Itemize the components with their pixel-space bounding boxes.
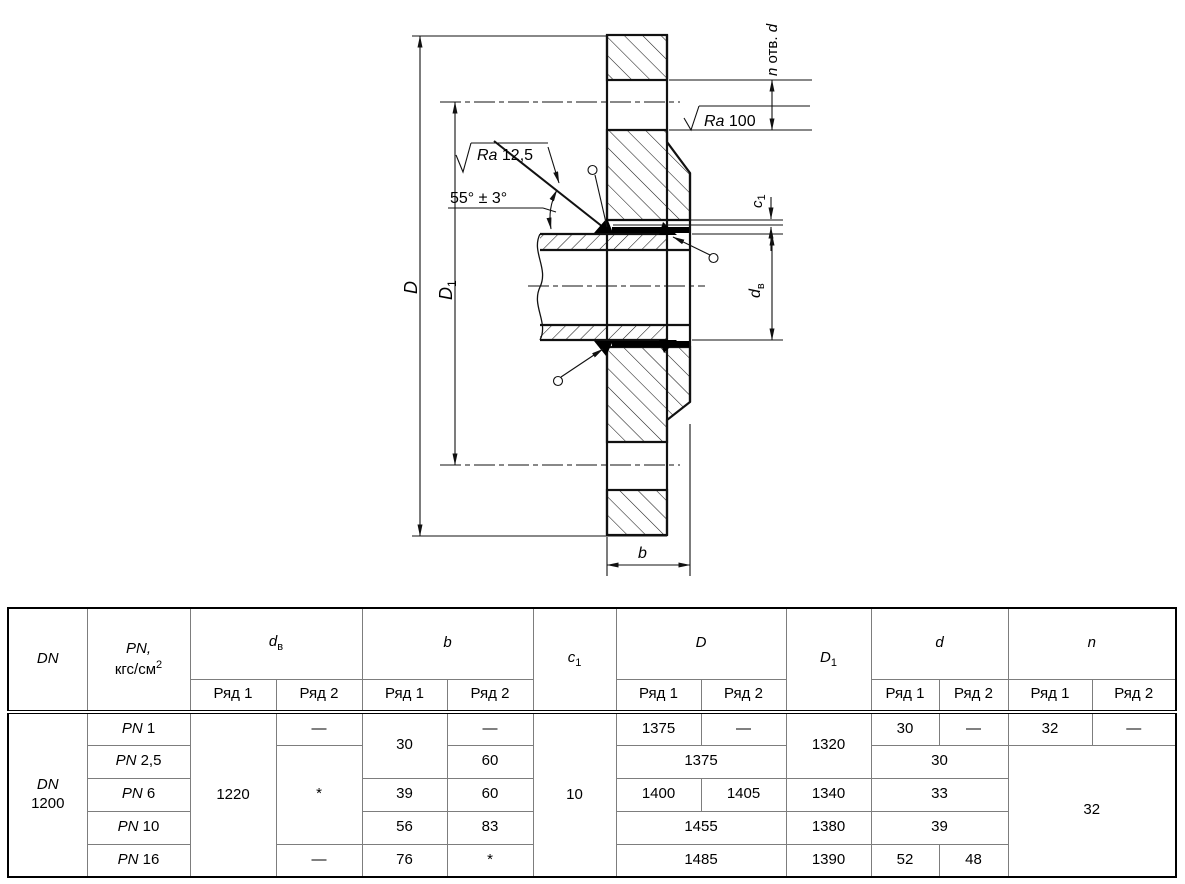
cell-pn-6: PN 6 [87,778,190,811]
cell-d-pn25: 30 [871,745,1008,778]
cell-D-row1-pn6: 1400 [616,778,701,811]
weld-perimeter-circle-icon [709,254,718,263]
col-header-b: b [362,608,533,679]
flange-technical-drawing: D D1 n отв. d Ra 100 Ra 12,5 55° ± 3° c1… [0,0,1185,600]
cell-d-row2-pn16: 48 [939,844,1008,877]
cell-b-row2-pn6: 60 [447,778,533,811]
pn-header-sup: 2 [156,659,162,671]
cell-dv-row1: 1220 [190,712,276,877]
weld-perimeter-circle-icon [588,166,597,175]
label-b: b [638,545,647,562]
subheader-n-row1: Ряд 1 [1008,679,1092,712]
cell-D1-pn10: 1380 [786,811,871,844]
pn-header-line1: PN, [126,640,151,657]
cell-b-row1-pn1-pn25: 30 [362,712,447,778]
label-D1: D1 [436,280,459,300]
cell-D-pn25: 1375 [616,745,786,778]
subheader-D-row2: Ряд 2 [701,679,786,712]
cell-c1: 10 [533,712,616,877]
cell-dv-row2-pn16: — [276,844,362,877]
cell-D1-pn1-pn25: 1320 [786,712,871,778]
roughness-check-icon [456,143,471,172]
col-header-D1: D1 [786,608,871,712]
cell-b-row2-pn1: — [447,712,533,745]
cell-b-row1-pn10: 56 [362,811,447,844]
col-header-c1: c1 [533,608,616,712]
subheader-dv-row2: Ряд 2 [276,679,362,712]
page: D D1 n отв. d Ra 100 Ra 12,5 55° ± 3° c1… [0,0,1185,884]
cell-D1-pn6: 1340 [786,778,871,811]
label-dv: dв [747,283,767,298]
subheader-d-row1: Ряд 1 [871,679,939,712]
cell-n-rest: 32 [1008,745,1176,877]
cell-b-row2-pn25: 60 [447,745,533,778]
cell-n-row2-pn1: — [1092,712,1176,745]
cell-d-pn10: 39 [871,811,1008,844]
subheader-D-row1: Ряд 1 [616,679,701,712]
subheader-b-row2: Ряд 2 [447,679,533,712]
cell-D-row2-pn6: 1405 [701,778,786,811]
cell-d-row1-pn16: 52 [871,844,939,877]
label-ra-12-5: Ra 12,5 [477,147,533,164]
cell-D-row2-pn1: — [701,712,786,745]
cell-D-row1-pn1: 1375 [616,712,701,745]
cell-dv-row2-pn1: — [276,712,362,745]
subheader-dv-row1: Ряд 1 [190,679,276,712]
cell-d-pn6: 33 [871,778,1008,811]
subheader-b-row1: Ряд 1 [362,679,447,712]
col-header-D: D [616,608,786,679]
label-angle: 55° ± 3° [450,190,507,207]
cell-d-row2-pn1: — [939,712,1008,745]
col-header-n: n [1008,608,1176,679]
cell-D-pn10: 1455 [616,811,786,844]
cell-dn: DN 1200 [8,712,87,877]
drawing-labels: D D1 n отв. d Ra 100 Ra 12,5 55° ± 3° c1… [401,23,781,562]
col-header-dv: dв [190,608,362,679]
cell-D1-pn16: 1390 [786,844,871,877]
label-c1: c1 [749,194,768,208]
col-header-d: d [871,608,1008,679]
cell-b-row1-pn6: 39 [362,778,447,811]
cell-pn-10: PN 10 [87,811,190,844]
cell-b-row2-pn16: * [447,844,533,877]
roughness-check-icon [684,106,699,130]
cell-b-row2-pn10: 83 [447,811,533,844]
cell-pn-25: PN 2,5 [87,745,190,778]
cell-pn-16: PN 16 [87,844,190,877]
subheader-n-row2: Ряд 2 [1092,679,1176,712]
flange-section-body [607,35,690,535]
subheader-d-row2: Ряд 2 [939,679,1008,712]
cell-d-row1-pn1: 30 [871,712,939,745]
col-header-dn: DN [8,608,87,712]
cell-dv-row2-mid: * [276,745,362,844]
label-ra-100: Ra 100 [704,113,756,130]
cell-b-row1-pn16: 76 [362,844,447,877]
dimension-table: DN PN, кгс/см2 dв b c1 D D1 d n Ряд 1 Ря… [7,607,1177,878]
col-header-pn: PN, кгс/см2 [87,608,190,712]
weld-perimeter-circle-icon [554,377,563,386]
dn-value-line2: 1200 [31,795,64,812]
label-n-holes-d: n отв. d [764,23,781,76]
cell-D-pn16: 1485 [616,844,786,877]
dn-value-line1: DN [37,776,59,793]
flange-outline-edges [607,35,690,535]
cell-n-row1-pn1: 32 [1008,712,1092,745]
cell-pn-1: PN 1 [87,712,190,745]
pn-header-line2: кгс/см [115,661,156,678]
label-D: D [401,281,421,294]
